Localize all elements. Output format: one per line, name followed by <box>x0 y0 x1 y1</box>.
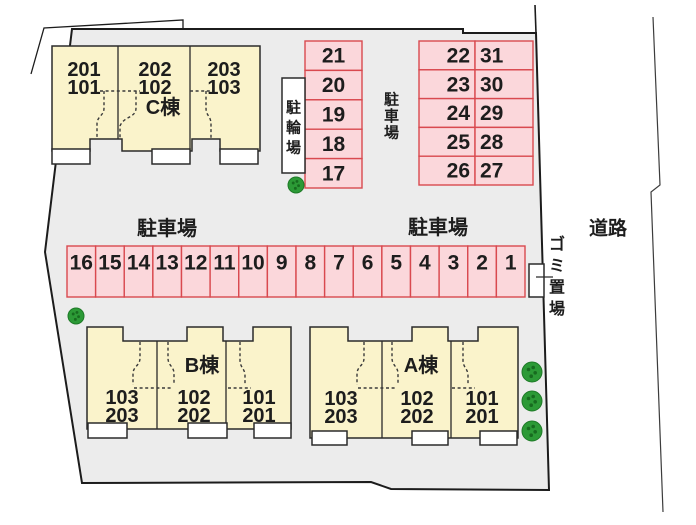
unit-label: 201 <box>242 405 275 427</box>
parking-spot-9-label: 9 <box>276 252 288 275</box>
tree-texture-dot <box>531 425 535 429</box>
tree-texture-dot <box>533 400 537 404</box>
garbage-area-label: ゴミ置場 <box>549 235 565 319</box>
vertical-label-char: ゴ <box>549 235 565 254</box>
parking-spot-12-label: 12 <box>184 252 207 275</box>
tree-icon <box>522 421 542 441</box>
tree-texture-dot <box>527 368 531 372</box>
parking-spot-11-label: 11 <box>213 252 236 275</box>
parking-spot-24-label: 24 <box>447 102 471 125</box>
tree-texture-dot <box>297 184 300 187</box>
unit-label: 201 <box>465 406 498 428</box>
parking-spot-7-label: 7 <box>333 252 345 275</box>
parking-spot-13-label: 13 <box>155 252 178 275</box>
parking-spot-5-label: 5 <box>390 252 402 275</box>
parking-column-upper: 2120191817 <box>305 41 362 188</box>
parking-spot-19-label: 19 <box>322 104 345 127</box>
tree-texture-dot <box>527 427 531 431</box>
vertical-label-char: 車 <box>384 107 399 125</box>
garbage-box <box>529 264 544 297</box>
vertical-label-char: 場 <box>549 300 565 318</box>
parking-spot-23-label: 23 <box>447 73 470 96</box>
road-label: 道路 <box>589 217 628 240</box>
parking-spot-21-label: 21 <box>322 45 346 68</box>
unit-label: 102 <box>138 77 171 99</box>
tree-texture-dot <box>529 433 533 437</box>
building-a-porch-2 <box>412 431 448 445</box>
parking-spot-27-label: 27 <box>480 160 503 183</box>
vertical-label-char: 輪 <box>286 119 302 137</box>
site-plan-svg: 2120191817 22312330242925282627 16151413… <box>0 0 696 525</box>
tree-canopy <box>68 308 84 324</box>
tree-texture-dot <box>296 180 299 183</box>
parking-spot-20-label: 20 <box>322 74 345 97</box>
parking-spot-1-label: 1 <box>505 252 517 275</box>
tree-texture-dot <box>533 430 537 434</box>
unit-label: 101 <box>67 77 100 99</box>
parking-spot-31-label: 31 <box>480 45 504 68</box>
building-c-porch-1 <box>52 149 90 164</box>
vertical-label-char: 場 <box>286 140 301 157</box>
road-edge-line <box>651 17 663 512</box>
unit-label: 202 <box>400 406 433 428</box>
tree-icon <box>522 391 542 411</box>
building-a-porch-1 <box>312 431 347 445</box>
tree-icon <box>522 362 542 382</box>
tree-texture-dot <box>529 403 533 407</box>
tree-texture-dot <box>72 313 75 316</box>
parking-spot-28-label: 28 <box>480 131 504 154</box>
bicycle-parking-label: 駐輪場 <box>286 99 302 157</box>
building-a-name: A棟 <box>404 353 439 377</box>
building-a-porch-3 <box>480 431 517 445</box>
building-c-porch-3 <box>220 149 258 164</box>
tree-texture-dot <box>527 397 531 401</box>
unit-label: 103 <box>207 77 240 99</box>
building-c-name: C棟 <box>146 95 181 119</box>
parking-block-upper: 22312330242925282627 <box>419 41 533 185</box>
parking-spot-29-label: 29 <box>480 102 503 125</box>
parking-label-middle-right: 駐車場 <box>408 215 468 239</box>
unit-label: 203 <box>324 406 357 428</box>
parking-spot-10-label: 10 <box>241 252 264 275</box>
unit-label: 202 <box>177 405 210 427</box>
tree-texture-dot <box>292 182 295 185</box>
tree-texture-dot <box>533 371 537 375</box>
tree-icon <box>68 308 84 324</box>
vertical-label-char: 場 <box>384 125 399 142</box>
tree-texture-dot <box>531 395 535 399</box>
building-c-porch-2 <box>152 149 190 164</box>
tree-texture-dot <box>529 374 533 378</box>
tree-canopy <box>522 421 542 441</box>
parking-spot-6-label: 6 <box>362 252 374 275</box>
tree-texture-dot <box>294 187 297 190</box>
parking-spot-15-label: 15 <box>98 252 122 275</box>
vertical-label-char: 置 <box>549 279 565 297</box>
tree-texture-dot <box>76 311 79 314</box>
parking-spot-4-label: 4 <box>419 252 431 275</box>
parking-spot-17-label: 17 <box>322 162 345 185</box>
parking-spot-30-label: 30 <box>480 73 503 96</box>
tree-texture-dot <box>74 318 77 321</box>
tree-canopy <box>522 391 542 411</box>
parking-spot-3-label: 3 <box>448 252 460 275</box>
tree-texture-dot <box>531 366 535 370</box>
parking-spot-2-label: 2 <box>476 252 488 275</box>
right-boundary-extension-line <box>535 5 536 33</box>
parking-spot-25-label: 25 <box>447 131 471 154</box>
tree-texture-dot <box>77 315 80 318</box>
tree-canopy <box>522 362 542 382</box>
parking-row-main: 16151413121110987654321 <box>67 246 525 297</box>
vertical-label-char: ミ <box>549 258 565 275</box>
parking-spot-14-label: 14 <box>127 252 151 275</box>
parking-label-middle-left: 駐車場 <box>137 216 197 240</box>
tree-canopy <box>288 177 304 193</box>
parking-label-upper-vertical: 駐車場 <box>384 91 399 142</box>
tree-icon <box>288 177 304 193</box>
unit-label: 203 <box>105 405 138 427</box>
parking-spot-26-label: 26 <box>447 160 470 183</box>
building-b-name: B棟 <box>185 353 220 377</box>
site-plan-page: 2120191817 22312330242925282627 16151413… <box>0 0 696 525</box>
vertical-label-char: 駐 <box>286 99 301 117</box>
parking-spot-8-label: 8 <box>304 252 316 275</box>
parking-spot-22-label: 22 <box>447 45 470 68</box>
vertical-label-char: 駐 <box>384 91 399 109</box>
parking-spot-16-label: 16 <box>70 252 93 275</box>
parking-spot-18-label: 18 <box>322 133 346 156</box>
